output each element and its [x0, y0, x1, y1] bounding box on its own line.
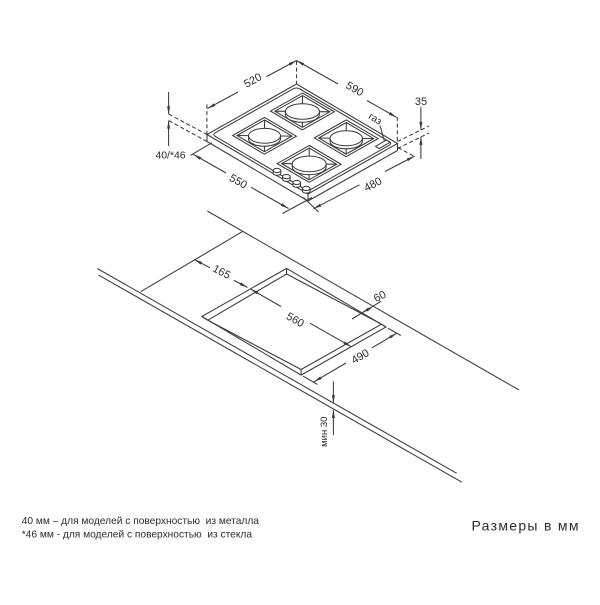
svg-text:40/*46: 40/*46	[155, 150, 185, 162]
svg-text:520: 520	[242, 71, 264, 90]
svg-text:60: 60	[372, 289, 388, 305]
svg-text:490: 490	[350, 347, 372, 367]
svg-text:590: 590	[344, 80, 366, 100]
svg-text:*46 мм - для моделей с поверхн: *46 мм - для моделей с поверхностью из с…	[22, 530, 253, 541]
svg-text:550: 550	[227, 172, 249, 192]
svg-text:мин 30: мин 30	[319, 417, 330, 447]
svg-text:Размеры в мм: Размеры в мм	[472, 518, 580, 534]
svg-text:560: 560	[284, 311, 306, 331]
svg-text:480: 480	[362, 175, 384, 194]
svg-text:40 мм – для моделей с поверхно: 40 мм – для моделей с поверхностью из ме…	[22, 516, 260, 527]
svg-text:35: 35	[415, 96, 427, 108]
svg-text:газ: газ	[366, 111, 384, 128]
svg-text:165: 165	[210, 263, 232, 282]
